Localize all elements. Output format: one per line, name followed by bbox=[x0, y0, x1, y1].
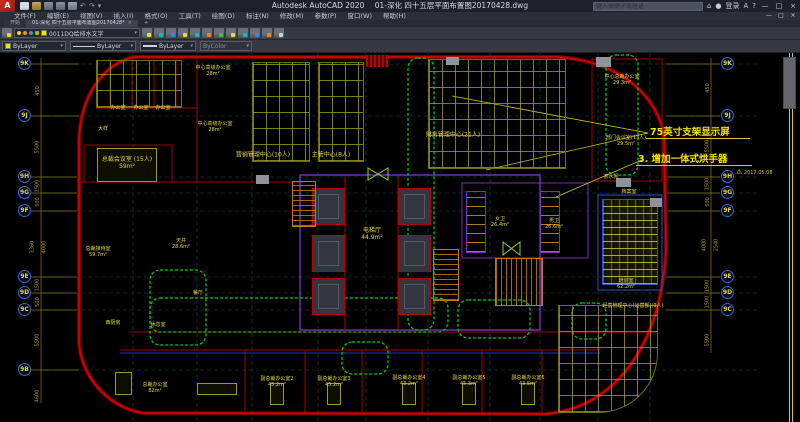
room-label: 副总裁办公室4 43.2m² bbox=[392, 375, 425, 387]
annotation-underline bbox=[646, 138, 750, 139]
room-label: 电梯厅 44.9m² bbox=[361, 227, 383, 241]
layers-toolbar: 0011DQ给排水文字 ▾ bbox=[0, 27, 800, 40]
tab-start[interactable]: 开始 bbox=[4, 20, 26, 27]
layer-dropdown[interactable]: 0011DQ给排水文字 ▾ bbox=[14, 28, 140, 38]
room-label: 总裁办公室 82m² bbox=[142, 382, 167, 394]
menu-parametric[interactable]: 参数(P) bbox=[314, 12, 336, 20]
axis-bubble: 9F bbox=[18, 204, 31, 217]
autocad-window: A ↶ ↷ ▾ Autodesk AutoCAD 2020 01-深化 四十五层… bbox=[0, 0, 800, 422]
column-stub bbox=[650, 198, 662, 207]
door-symbols bbox=[368, 168, 520, 255]
layer-on-bulb-icon bbox=[17, 31, 21, 35]
layer-delete-icon[interactable] bbox=[274, 28, 284, 38]
menu-file[interactable]: 文件(F) bbox=[14, 12, 36, 20]
dimension-text: 1500 bbox=[704, 178, 710, 191]
annotation-note-2: 3. 增加一体式烘手器 bbox=[638, 151, 728, 165]
room-label: 副总裁办公室3 45.2m² bbox=[317, 376, 350, 388]
chevron-down-icon: ▾ bbox=[60, 43, 63, 49]
dimension-text: 4000 bbox=[41, 241, 47, 254]
room-label: 餐厅 bbox=[193, 290, 203, 296]
axis-bubble: 9J bbox=[18, 109, 31, 122]
room-label: 部门会议室(13人) 29.5m² bbox=[606, 135, 646, 147]
linetype-dropdown[interactable]: ByLayer ▾ bbox=[70, 41, 136, 51]
color-dropdown[interactable]: ByLayer ▾ bbox=[2, 41, 66, 51]
column-stub bbox=[596, 57, 611, 67]
user-icon[interactable]: ● bbox=[715, 1, 721, 11]
column-stub bbox=[446, 57, 459, 65]
workstation-cluster bbox=[428, 59, 566, 169]
minimize-button[interactable]: — bbox=[760, 2, 770, 10]
room-label: 办公室 bbox=[110, 105, 125, 111]
training-seats bbox=[602, 199, 658, 285]
room-label: 副总裁办公室5 45.3m² bbox=[452, 375, 485, 387]
dimension-text: 1500 bbox=[34, 180, 40, 193]
menu-draw[interactable]: 绘图(D) bbox=[212, 12, 235, 20]
dimension-text: 500 bbox=[35, 297, 41, 307]
menu-tools[interactable]: 工具(T) bbox=[179, 12, 201, 20]
room-label: 女卫 26.4m² bbox=[491, 216, 509, 228]
menu-format[interactable]: 格式(O) bbox=[145, 12, 168, 20]
restore-button[interactable]: □ bbox=[774, 2, 784, 10]
column-stub bbox=[256, 175, 269, 184]
room-label: 中心高级办公室 28m² bbox=[197, 121, 232, 133]
annotation-note-1: 75英寸支架显示屏 bbox=[650, 124, 730, 138]
room-label: 男卫 26.6m² bbox=[545, 218, 563, 230]
doc-close-button[interactable]: × bbox=[789, 12, 797, 19]
menu-dimension[interactable]: 标注(N) bbox=[246, 12, 269, 20]
menu-view[interactable]: 视图(V) bbox=[80, 12, 103, 20]
tab-drawing-label: 01-深化 四十五层平面布置图20170428* bbox=[32, 20, 125, 27]
layer-copy-icon[interactable] bbox=[238, 28, 248, 38]
elevator-shaft bbox=[398, 278, 431, 315]
title-bar: A ↶ ↷ ▾ Autodesk AutoCAD 2020 01-深化 四十五层… bbox=[0, 0, 800, 12]
axis-bubble: 9D bbox=[721, 286, 734, 299]
dimension-text: 5500 bbox=[34, 334, 40, 347]
search-icon[interactable]: ⌂ bbox=[707, 1, 711, 11]
layer-isolate-icon[interactable] bbox=[178, 28, 188, 38]
shaft-hatch bbox=[366, 55, 388, 67]
workstation-cluster bbox=[96, 60, 182, 108]
dimension-text: 450 bbox=[705, 83, 711, 93]
room-label: 财务管理中心(21人) bbox=[426, 131, 480, 138]
layer-states-icon[interactable] bbox=[166, 28, 176, 38]
revision-date: ⚠ 2017.05.08 bbox=[736, 168, 773, 176]
menu-insert[interactable]: 插入(I) bbox=[114, 12, 134, 20]
sign-in-link[interactable]: 登录 bbox=[725, 1, 739, 11]
search-input[interactable] bbox=[593, 2, 703, 11]
color-swatch bbox=[5, 43, 11, 49]
menu-modify[interactable]: 修改(M) bbox=[280, 12, 304, 20]
close-button[interactable]: × bbox=[788, 2, 798, 10]
dimension-text: 4000 bbox=[701, 239, 707, 252]
doc-window-controls: — □ × bbox=[765, 12, 797, 19]
plotstyle-dropdown: ByColor ▾ bbox=[200, 41, 252, 51]
layer-walk-icon[interactable] bbox=[250, 28, 260, 38]
warning-icon: ⚠ bbox=[736, 168, 742, 176]
room-label: 档案室 bbox=[621, 189, 636, 195]
axis-bubble: 9E bbox=[721, 270, 734, 283]
help-icon[interactable]: ? bbox=[752, 1, 756, 11]
menu-help[interactable]: 帮助(H) bbox=[383, 12, 406, 20]
room-label: 大样 bbox=[98, 126, 108, 132]
layer-lock-icon bbox=[35, 31, 39, 35]
axis-bubble: 9H bbox=[721, 170, 734, 183]
dimension-text: 3360 bbox=[29, 241, 35, 254]
revision-date-text: 2017.05.08 bbox=[744, 170, 773, 176]
elevator-shaft bbox=[398, 235, 431, 272]
layer-merge-icon[interactable] bbox=[262, 28, 272, 38]
axis-bubble: 9C bbox=[721, 303, 734, 316]
layer-vp-icon bbox=[29, 31, 33, 35]
office-table bbox=[115, 372, 132, 395]
axis-bubble: 9B bbox=[18, 363, 31, 376]
app-store-icon[interactable]: A bbox=[743, 1, 748, 11]
linetype-value: ByLayer bbox=[97, 43, 121, 50]
axis-bubble: 9D bbox=[18, 286, 31, 299]
doc-restore-button[interactable]: □ bbox=[777, 12, 785, 19]
chevron-down-icon: ▾ bbox=[190, 43, 193, 49]
file-tab-bar: 开始 01-深化 四十五层平面布置图20170428* × + bbox=[0, 20, 800, 27]
chevron-down-icon: ▾ bbox=[134, 30, 137, 36]
axis-bubble: 9F bbox=[721, 204, 734, 217]
elevator-shaft bbox=[312, 278, 345, 315]
chevron-down-icon: ▾ bbox=[246, 43, 249, 49]
color-value: ByLayer bbox=[13, 43, 37, 50]
make-layer-current-icon[interactable] bbox=[142, 28, 152, 38]
new-tab-button[interactable]: + bbox=[138, 20, 154, 27]
dimension-text: 1500 bbox=[704, 280, 710, 293]
stair bbox=[433, 249, 459, 301]
layer-off-icon[interactable] bbox=[214, 28, 224, 38]
axis-bubble: 9H bbox=[18, 170, 31, 183]
room-label: 主管中心(8人) bbox=[312, 151, 351, 158]
chevron-down-icon: ▾ bbox=[130, 43, 133, 49]
room-label: 总裁会议室 (15人) 59m² bbox=[102, 156, 152, 170]
dimension-text: 500 bbox=[705, 197, 711, 207]
annotation-underline bbox=[636, 165, 752, 166]
room-label: 培训室 62.2m² bbox=[617, 278, 635, 290]
room-label: 天井 28.6m² bbox=[172, 238, 190, 250]
layer-match-icon[interactable] bbox=[226, 28, 236, 38]
layer-freeze-sun-icon bbox=[23, 31, 27, 35]
layer-unisolate-icon[interactable] bbox=[190, 28, 200, 38]
lineweight-value: ByLayer bbox=[159, 43, 183, 50]
lineweight-dropdown[interactable]: ByLayer ▾ bbox=[140, 41, 196, 51]
elevator-shaft bbox=[312, 235, 345, 272]
room-label: 副总裁办公室2 45.2m² bbox=[260, 376, 293, 388]
drawing-canvas[interactable]: 9K 9J 9H 9G 9F 9E 9D 9C 9B 9K 9J 9H 9G 9… bbox=[0, 53, 800, 422]
room-label: 副总裁办公室6 43.5m² bbox=[511, 375, 544, 387]
dimension-text: 1500 bbox=[704, 296, 710, 309]
elevator-shaft bbox=[398, 188, 431, 225]
workstation-cluster bbox=[318, 62, 364, 162]
room-label: 茶水间 bbox=[603, 174, 618, 180]
dimension-text: 2540 bbox=[713, 239, 719, 252]
dimension-text: 1500 bbox=[34, 279, 40, 292]
room-label: 中心总裁办公室 29.3m² bbox=[604, 74, 639, 86]
room-label: 休息室 bbox=[150, 322, 165, 328]
properties-toolbar: ByLayer ▾ ByLayer ▾ ByLayer ▾ ByColor ▾ bbox=[0, 40, 800, 53]
axis-bubble: 9K bbox=[18, 57, 31, 70]
plotstyle-value: ByColor bbox=[203, 43, 226, 50]
linetype-sample bbox=[73, 46, 95, 47]
app-title: Autodesk AutoCAD 2020 bbox=[272, 1, 364, 10]
dimension-text: 450 bbox=[35, 86, 41, 96]
layer-color-swatch bbox=[41, 30, 47, 36]
layer-name: 0011DQ给排水文字 bbox=[49, 29, 104, 38]
title-right-cluster: ⌂ ● 登录 A ? — □ × bbox=[593, 0, 798, 12]
workstation-cluster bbox=[252, 62, 310, 162]
office-desk bbox=[197, 383, 237, 395]
room-label: 中心高级办公室 28m² bbox=[195, 65, 230, 77]
dimension-text: 5500 bbox=[34, 141, 40, 154]
layer-properties-icon[interactable] bbox=[2, 28, 12, 38]
room-label: 经营管理中心(运营部)(9人) bbox=[603, 303, 664, 309]
axis-bubble: 9J bbox=[721, 109, 734, 122]
room-label: 办公室 bbox=[155, 105, 170, 111]
toilet-stalls bbox=[466, 191, 486, 253]
dimension-text: 4600 bbox=[34, 390, 40, 403]
axis-bubble: 9C bbox=[18, 303, 31, 316]
room-label: 西厨房 bbox=[105, 320, 120, 326]
dimension-text: 5500 bbox=[704, 334, 710, 347]
stair bbox=[495, 258, 543, 306]
doc-minimize-button[interactable]: — bbox=[765, 12, 773, 19]
lineweight-sample bbox=[143, 45, 157, 47]
elevator-shaft bbox=[312, 188, 345, 225]
axis-bubble: 9K bbox=[721, 57, 734, 70]
axis-bubble: 9G bbox=[18, 186, 31, 199]
room-label: 总裁接待室 59.7m² bbox=[85, 246, 110, 258]
layer-previous-icon[interactable] bbox=[154, 28, 164, 38]
room-label: 办公室 bbox=[133, 105, 148, 111]
menu-edit[interactable]: 编辑(E) bbox=[47, 12, 69, 20]
scrollbar-thumb[interactable] bbox=[783, 57, 796, 109]
layer-freeze-icon[interactable] bbox=[202, 28, 212, 38]
axis-bubble: 9E bbox=[18, 270, 31, 283]
stair bbox=[292, 181, 316, 227]
axis-bubble: 9G bbox=[721, 186, 734, 199]
tab-close-icon[interactable]: × bbox=[128, 20, 132, 27]
menu-window[interactable]: 窗口(W) bbox=[347, 12, 372, 20]
menu-bar: 文件(F) 编辑(E) 视图(V) 插入(I) 格式(O) 工具(T) 绘图(D… bbox=[0, 12, 800, 20]
tab-drawing[interactable]: 01-深化 四十五层平面布置图20170428* × bbox=[26, 20, 138, 27]
room-label: 营销管理中心(10人) bbox=[236, 151, 290, 158]
dimension-text: 500 bbox=[35, 197, 41, 207]
doc-title: 01-深化 四十五层平面布置图20170428.dwg bbox=[375, 1, 528, 10]
